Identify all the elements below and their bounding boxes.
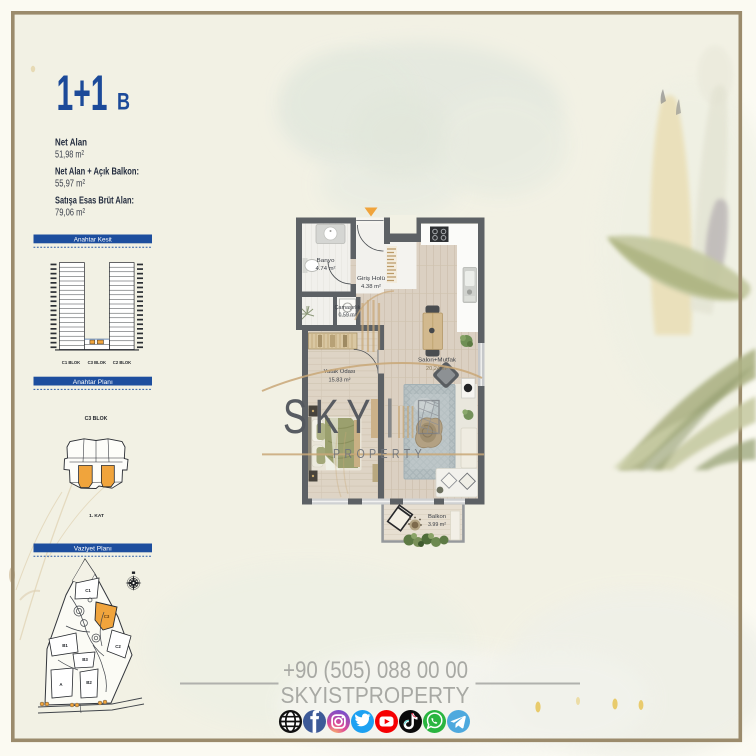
svg-text:B1: B1 bbox=[62, 643, 68, 648]
svg-text:SKY: SKY bbox=[283, 391, 378, 444]
svg-text:Net Alan + Açık Balkon:: Net Alan + Açık Balkon: bbox=[55, 167, 139, 178]
svg-text:Satışa Esas Brüt Alan:: Satışa Esas Brüt Alan: bbox=[55, 196, 134, 207]
svg-text:+90 (505) 088 00 00: +90 (505) 088 00 00 bbox=[283, 657, 468, 684]
svg-text:Balkon: Balkon bbox=[428, 514, 446, 520]
svg-text:B3: B3 bbox=[82, 657, 88, 662]
svg-text:C3: C3 bbox=[104, 614, 110, 619]
svg-text:51,98 m²: 51,98 m² bbox=[55, 150, 84, 161]
svg-text:Anahtar Planı: Anahtar Planı bbox=[73, 379, 113, 386]
svg-text:C3 BLOK: C3 BLOK bbox=[88, 360, 106, 365]
svg-text:C1 BLOK: C1 BLOK bbox=[62, 360, 80, 365]
svg-text:1+1: 1+1 bbox=[57, 65, 108, 121]
svg-text:B2: B2 bbox=[86, 680, 92, 685]
svg-text:4.74 m²: 4.74 m² bbox=[316, 266, 336, 272]
svg-text:C2: C2 bbox=[115, 644, 121, 649]
svg-text:Çamaşırlık: Çamaşırlık bbox=[335, 305, 361, 311]
svg-text:1. KAT: 1. KAT bbox=[89, 513, 104, 519]
svg-text:Salon+Mutfak: Salon+Mutfak bbox=[418, 358, 456, 364]
svg-text:15.83 m²: 15.83 m² bbox=[329, 378, 351, 384]
svg-text:Anahtar Kesit: Anahtar Kesit bbox=[74, 237, 112, 244]
svg-text:4.38 m²: 4.38 m² bbox=[361, 284, 381, 290]
svg-text:Banyo: Banyo bbox=[317, 258, 335, 264]
svg-text:79,06 m²: 79,06 m² bbox=[55, 208, 86, 219]
svg-text:C2 BLOK: C2 BLOK bbox=[113, 360, 131, 365]
svg-text:Vaziyet Planı: Vaziyet Planı bbox=[74, 546, 112, 553]
svg-text:C1: C1 bbox=[85, 588, 91, 593]
svg-text:C3 BLOK: C3 BLOK bbox=[85, 416, 108, 422]
svg-text:3.99 m²: 3.99 m² bbox=[428, 522, 446, 528]
svg-text:B: B bbox=[117, 89, 130, 116]
svg-text:55,97 m²: 55,97 m² bbox=[55, 179, 86, 190]
svg-text:PROPERTY: PROPERTY bbox=[333, 446, 426, 461]
svg-text:Net Alan: Net Alan bbox=[55, 138, 87, 149]
svg-text:SKYISTPROPERTY: SKYISTPROPERTY bbox=[281, 682, 470, 708]
svg-text:Giriş Holü: Giriş Holü bbox=[357, 276, 385, 282]
svg-text:0.59 m²: 0.59 m² bbox=[339, 313, 357, 319]
